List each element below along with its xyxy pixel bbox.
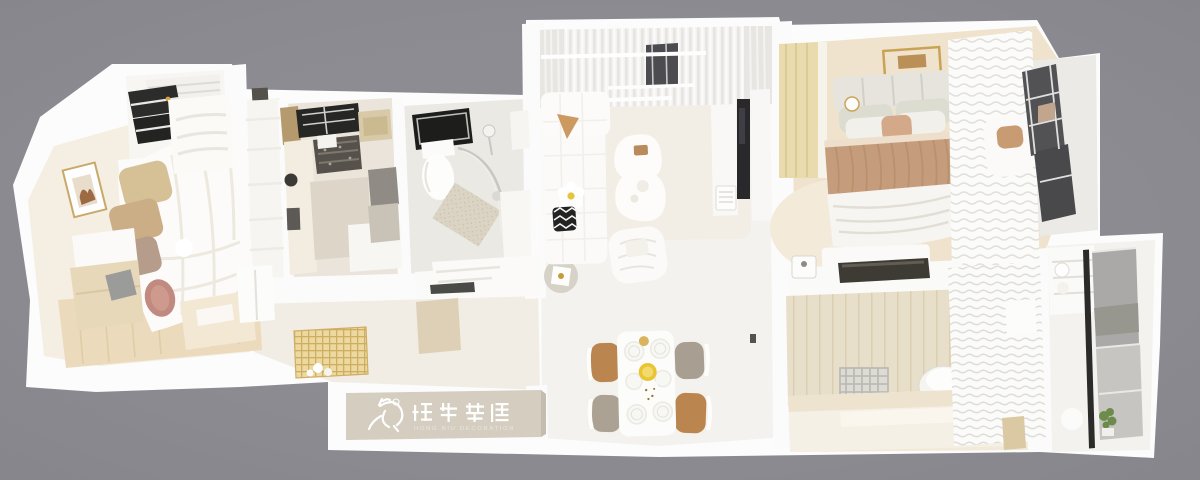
svg-text:HONG NIU DECORATION: HONG NIU DECORATION: [414, 426, 515, 432]
